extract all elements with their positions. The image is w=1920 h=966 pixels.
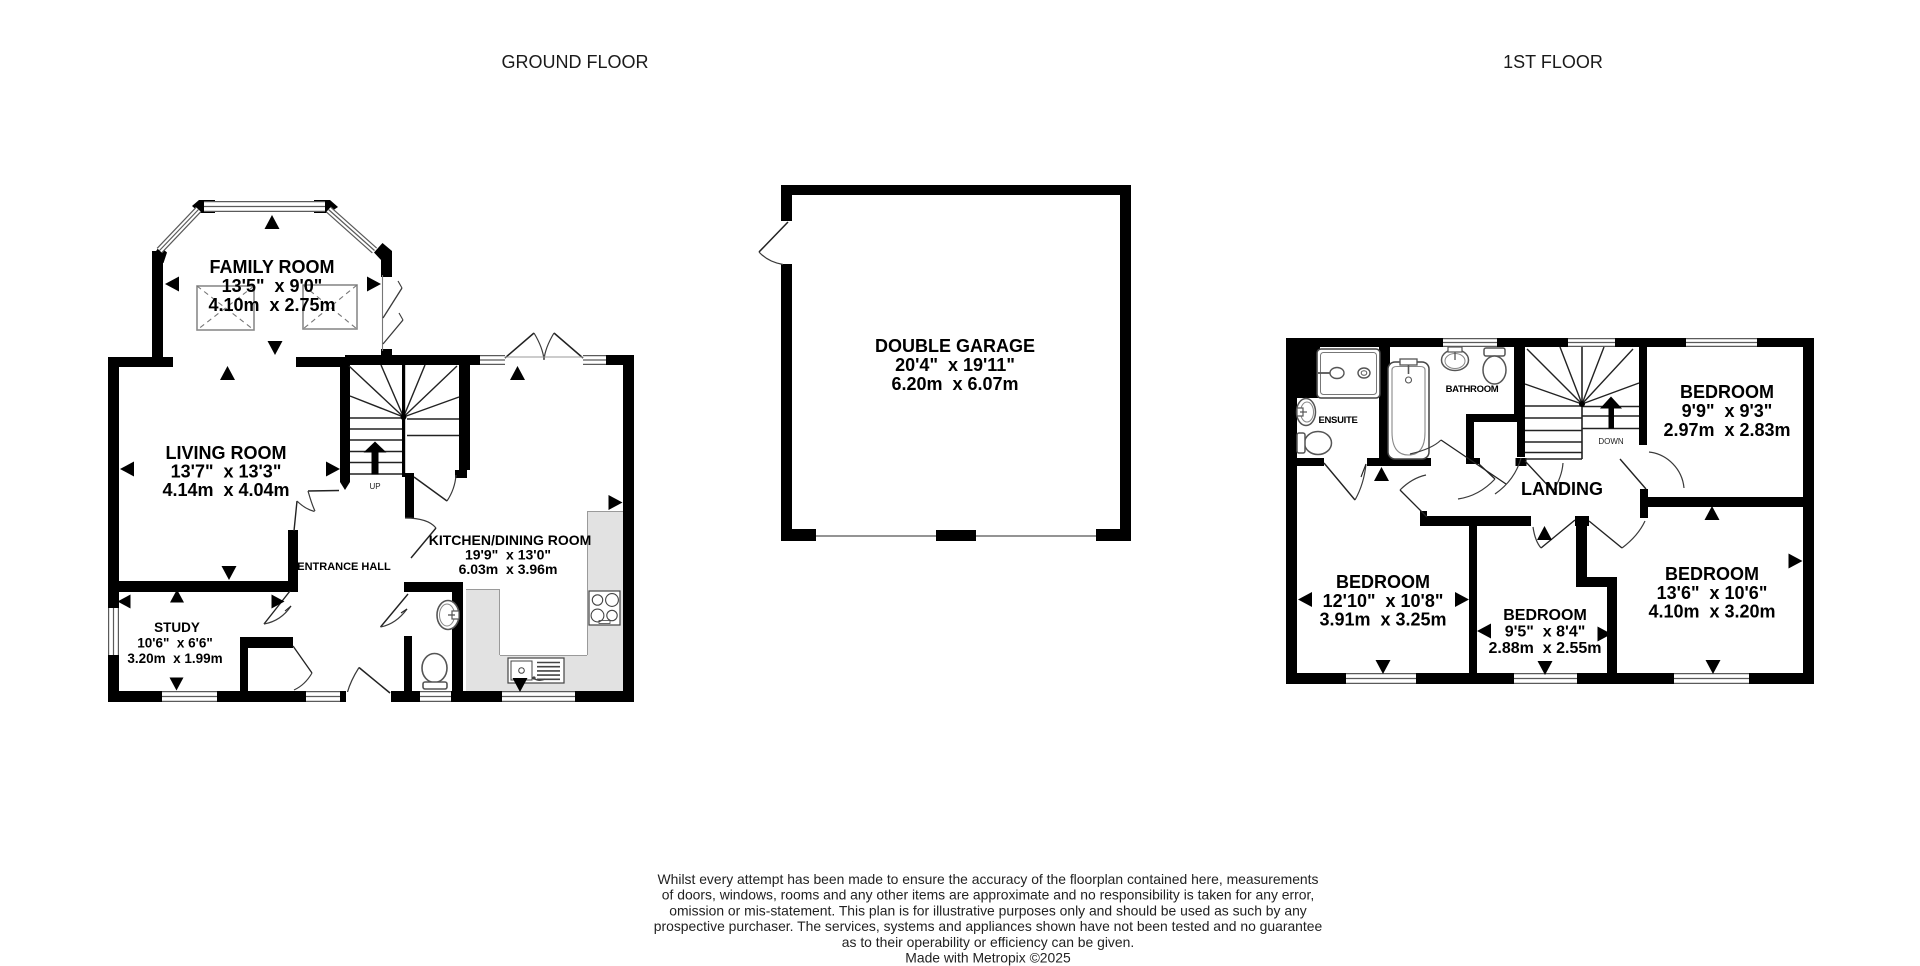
svg-text:1ST FLOOR: 1ST FLOOR	[1503, 52, 1603, 72]
svg-text:BEDROOM: BEDROOM	[1336, 572, 1430, 592]
svg-text:4.10m x 3.20m: 4.10m x 3.20m	[1648, 602, 1775, 622]
svg-text:DOWN: DOWN	[1598, 437, 1624, 446]
svg-text:12'10" x 10'8": 12'10" x 10'8"	[1323, 591, 1444, 611]
svg-text:GROUND FLOOR: GROUND FLOOR	[501, 52, 648, 72]
svg-text:BEDROOM: BEDROOM	[1665, 564, 1759, 584]
svg-text:13'7" x 13'3": 13'7" x 13'3"	[171, 462, 282, 482]
svg-text:4.14m x 4.04m: 4.14m x 4.04m	[162, 480, 289, 500]
svg-text:STUDY: STUDY	[154, 620, 200, 635]
svg-text:13'6" x 10'6": 13'6" x 10'6"	[1657, 583, 1768, 603]
svg-text:10'6" x 6'6": 10'6" x 6'6"	[137, 636, 213, 651]
svg-text:omission or mis-statement. Thi: omission or mis-statement. This plan is …	[669, 902, 1307, 918]
svg-text:FAMILY ROOM: FAMILY ROOM	[209, 257, 334, 277]
svg-text:BATHROOM: BATHROOM	[1446, 384, 1499, 395]
svg-text:Whilst every attempt has been: Whilst every attempt has been made to en…	[658, 871, 1319, 887]
svg-text:BEDROOM: BEDROOM	[1503, 607, 1587, 624]
svg-text:2.88m x 2.55m: 2.88m x 2.55m	[1489, 640, 1602, 657]
svg-text:as to their operability or eff: as to their operability or efficiency ca…	[842, 934, 1134, 950]
svg-text:6.03m x 3.96m: 6.03m x 3.96m	[459, 561, 558, 577]
svg-text:ENTRANCE HALL: ENTRANCE HALL	[297, 561, 391, 573]
svg-text:13'5" x 9'0": 13'5" x 9'0"	[222, 276, 323, 296]
svg-text:6.20m x 6.07m: 6.20m x 6.07m	[891, 374, 1018, 394]
svg-text:DOUBLE GARAGE: DOUBLE GARAGE	[875, 336, 1035, 356]
svg-text:prospective purchaser. The ser: prospective purchaser. The services, sys…	[654, 918, 1323, 934]
svg-text:20'4" x 19'11": 20'4" x 19'11"	[895, 355, 1015, 375]
svg-text:9'9" x 9'3": 9'9" x 9'3"	[1682, 401, 1773, 421]
svg-text:9'5" x 8'4": 9'5" x 8'4"	[1505, 624, 1586, 641]
svg-text:Made with Metropix ©2025: Made with Metropix ©2025	[905, 950, 1071, 966]
svg-text:LANDING: LANDING	[1521, 479, 1603, 499]
svg-text:UP: UP	[369, 482, 380, 491]
svg-text:LIVING ROOM: LIVING ROOM	[166, 443, 287, 463]
svg-text:2.97m x 2.83m: 2.97m x 2.83m	[1663, 420, 1790, 440]
svg-text:3.20m x 1.99m: 3.20m x 1.99m	[127, 651, 222, 666]
svg-text:4.10m x 2.75m: 4.10m x 2.75m	[208, 295, 335, 315]
svg-text:ENSUITE: ENSUITE	[1318, 415, 1357, 426]
svg-text:of doors, windows, rooms and a: of doors, windows, rooms and any other i…	[662, 887, 1314, 903]
svg-text:BEDROOM: BEDROOM	[1680, 382, 1774, 402]
svg-text:3.91m x 3.25m: 3.91m x 3.25m	[1319, 610, 1446, 630]
